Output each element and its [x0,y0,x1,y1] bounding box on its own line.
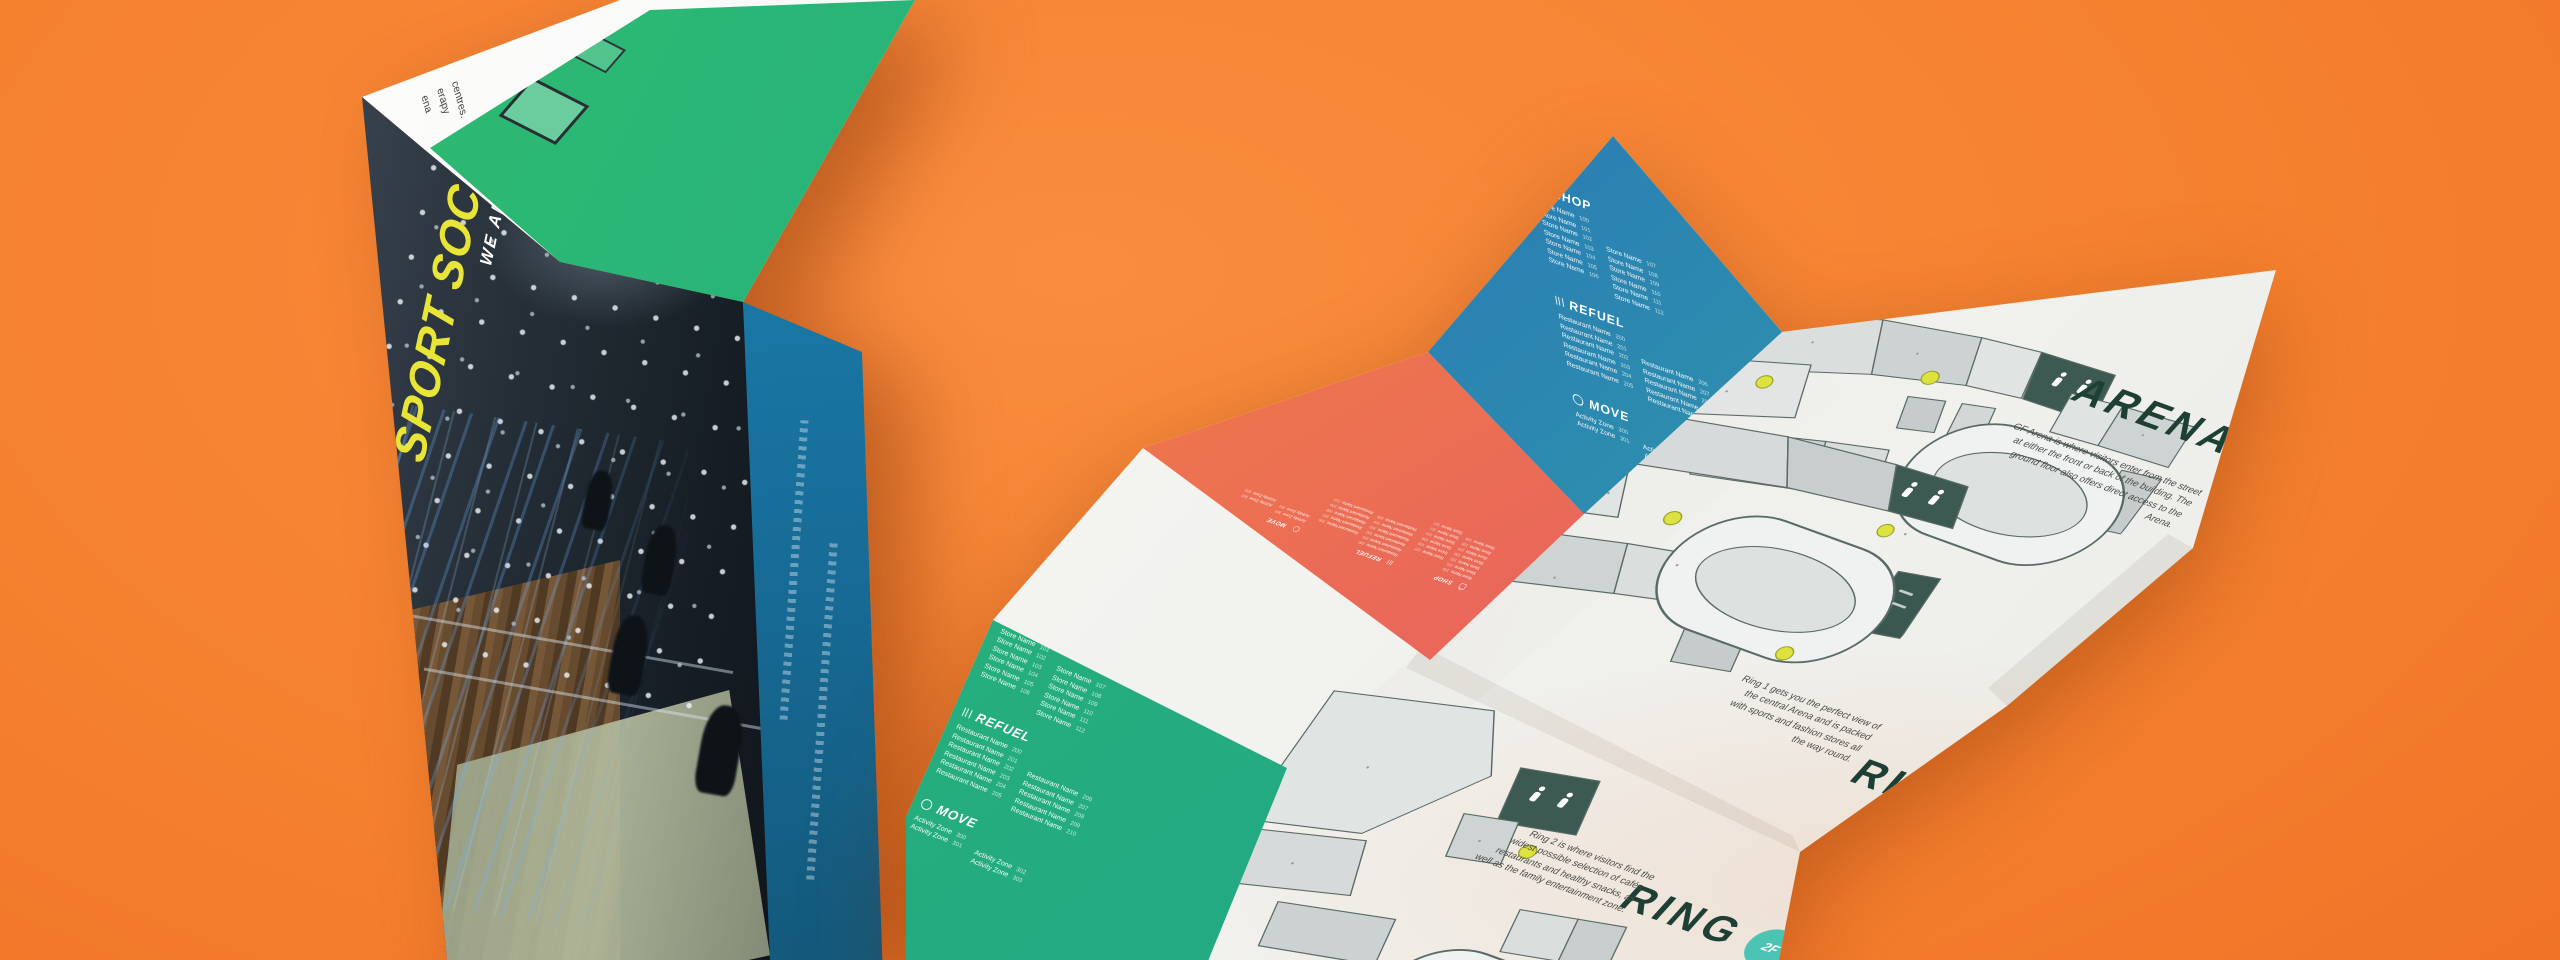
cutlery-icon [1555,296,1564,307]
directory-column: Activity Zone302Activity Zone303 [968,849,1027,887]
cutlery-icon [1386,560,1393,566]
directory-column: Restaurant Name206Restaurant Name207Rest… [1008,771,1093,840]
cutlery-icon [962,707,973,718]
activity-icon [1292,526,1302,533]
directory-column: Store Name100Store Name101Store Name102S… [1539,201,1603,298]
directory-column: Store Name107Store Name108Store Name109S… [1034,666,1107,737]
shopping-bag-icon [1458,583,1468,590]
activity-icon [1572,392,1584,406]
shopping-bag-icon [1535,182,1547,196]
activity-icon [919,797,934,811]
directory-column: Store Name107Store Name108Store Name109S… [1606,246,1665,319]
directory-label: MOVE [1266,517,1288,528]
floor-badge: GF [2230,431,2306,483]
scene: ena erapy centres. SPORT SOC1ETY WE [0,0,2560,960]
directory-label: SHOP [1432,574,1454,585]
unfolded-brochure: ARENA GF GF Arena is where visitors ente… [0,0,2560,960]
floor-badge: 1F [1966,799,2044,849]
